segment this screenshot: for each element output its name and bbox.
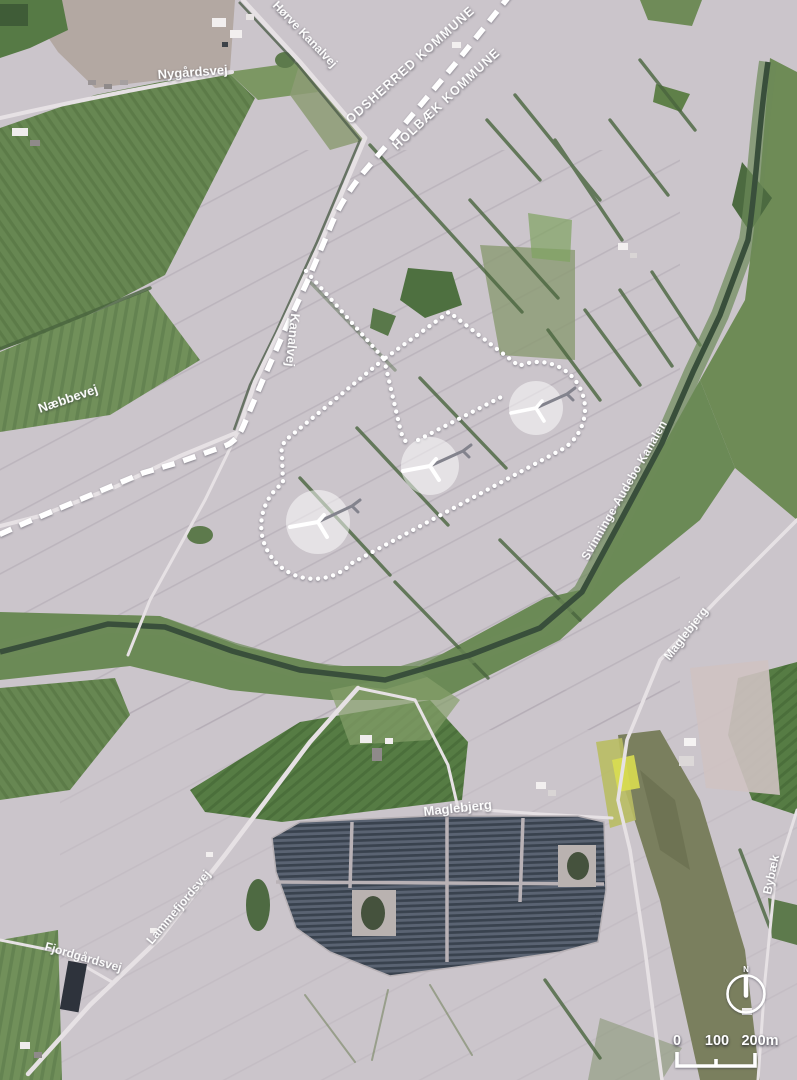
building (536, 782, 546, 789)
trees-west-solar (246, 879, 270, 931)
aerial-map: Hørve Kanalvej Nygårdsvej ODSHERRED KOMM… (0, 0, 797, 1080)
solar-path (276, 882, 604, 884)
building (618, 243, 628, 250)
building-maglebjerg-farm (360, 735, 372, 743)
scale-label-200m: 200m (741, 1033, 778, 1049)
building (630, 253, 637, 258)
building-maglebjerg-farm (372, 748, 382, 761)
building (88, 80, 96, 85)
north-arrow-n: N (743, 965, 749, 974)
field-green-mid (528, 213, 572, 262)
building (222, 42, 228, 47)
map-canvas: Hørve Kanalvej Nygårdsvej ODSHERRED KOMM… (0, 0, 797, 1080)
building (212, 18, 226, 27)
solar-clearing-trees (361, 896, 385, 930)
building (246, 14, 254, 20)
solar-clearing2-trees (567, 852, 589, 880)
building (452, 42, 461, 48)
building (104, 84, 112, 89)
scale-label-0: 0 (673, 1033, 681, 1049)
greenhouse (679, 756, 694, 766)
building (12, 128, 28, 136)
building-maglebjerg-farm (385, 738, 393, 744)
building (120, 80, 128, 85)
building (34, 1052, 42, 1058)
building (206, 852, 213, 857)
building (230, 30, 242, 38)
building (20, 1042, 30, 1049)
building (30, 140, 40, 146)
trees-corner (0, 4, 28, 26)
solar-path (350, 822, 352, 888)
scale-label-100: 100 (705, 1033, 729, 1049)
building (548, 790, 556, 796)
building (684, 738, 696, 746)
